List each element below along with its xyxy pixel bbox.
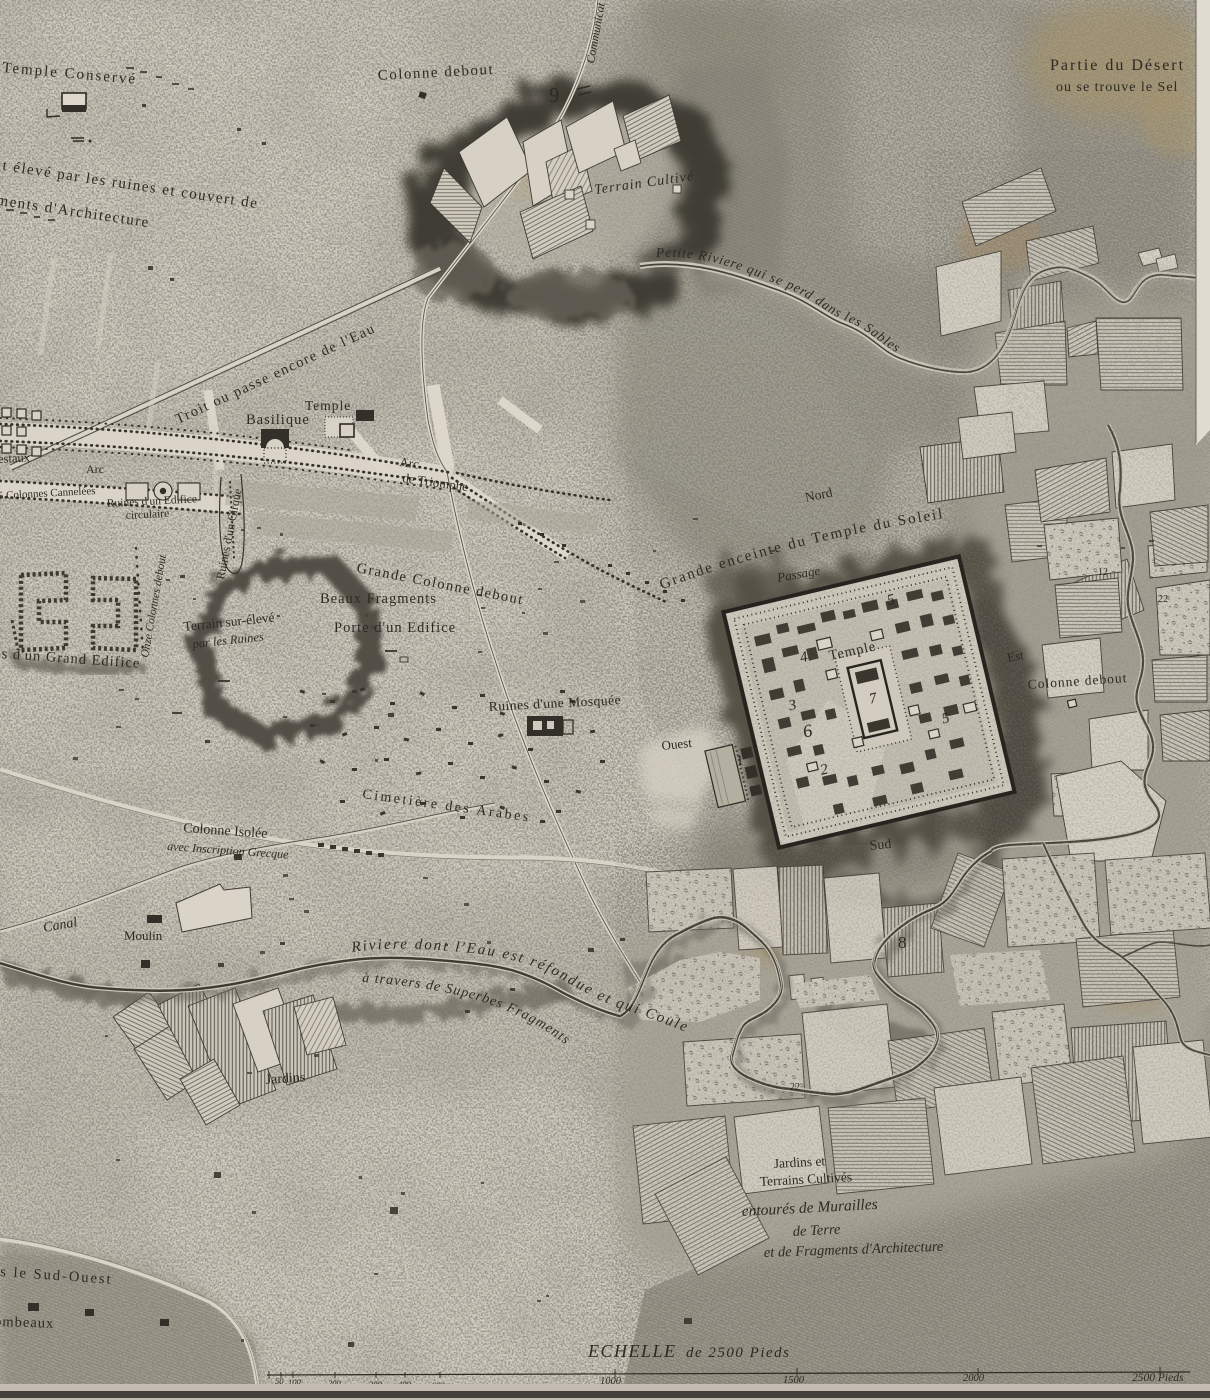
svg-text:22: 22 [790,1082,800,1093]
svg-text:destaux: destaux [0,450,31,466]
svg-text:ECHELLE: ECHELLE [587,1341,677,1361]
svg-text:2000: 2000 [963,1373,985,1384]
svg-text:de 2500 Pieds: de 2500 Pieds [686,1345,790,1361]
svg-text:12: 12 [1098,567,1108,578]
svg-text:Arc: Arc [86,462,104,476]
svg-text:2500 Pieds: 2500 Pieds [1132,1372,1184,1384]
svg-text:Est: Est [1006,647,1025,665]
svg-text:9: 9 [549,83,560,107]
svg-text:de Terre: de Terre [792,1221,841,1240]
svg-text:Arc: Arc [399,454,421,472]
svg-text:Sud: Sud [869,837,892,854]
svg-text:Jardins: Jardins [265,1070,306,1088]
svg-text:ombeaux: ombeaux [0,1314,55,1332]
svg-text:Temple: Temple [305,398,351,413]
svg-text:Ouest: Ouest [661,735,693,753]
svg-text:8: 8 [898,933,907,952]
svg-text:circulaire: circulaire [126,508,170,522]
svg-text:Beaux Fragments: Beaux Fragments [320,591,437,607]
svg-text:Jardins et: Jardins et [773,1153,825,1171]
svg-text:22: 22 [1158,594,1168,605]
svg-text:Basilique: Basilique [246,412,310,428]
svg-text:Porte d'un Edifice: Porte d'un Edifice [334,620,456,636]
svg-text:Moulin: Moulin [124,928,163,943]
svg-text:ou se trouve le Sel: ou se trouve le Sel [1056,80,1178,95]
svg-text:Partie du Désert: Partie du Désert [1050,57,1185,74]
